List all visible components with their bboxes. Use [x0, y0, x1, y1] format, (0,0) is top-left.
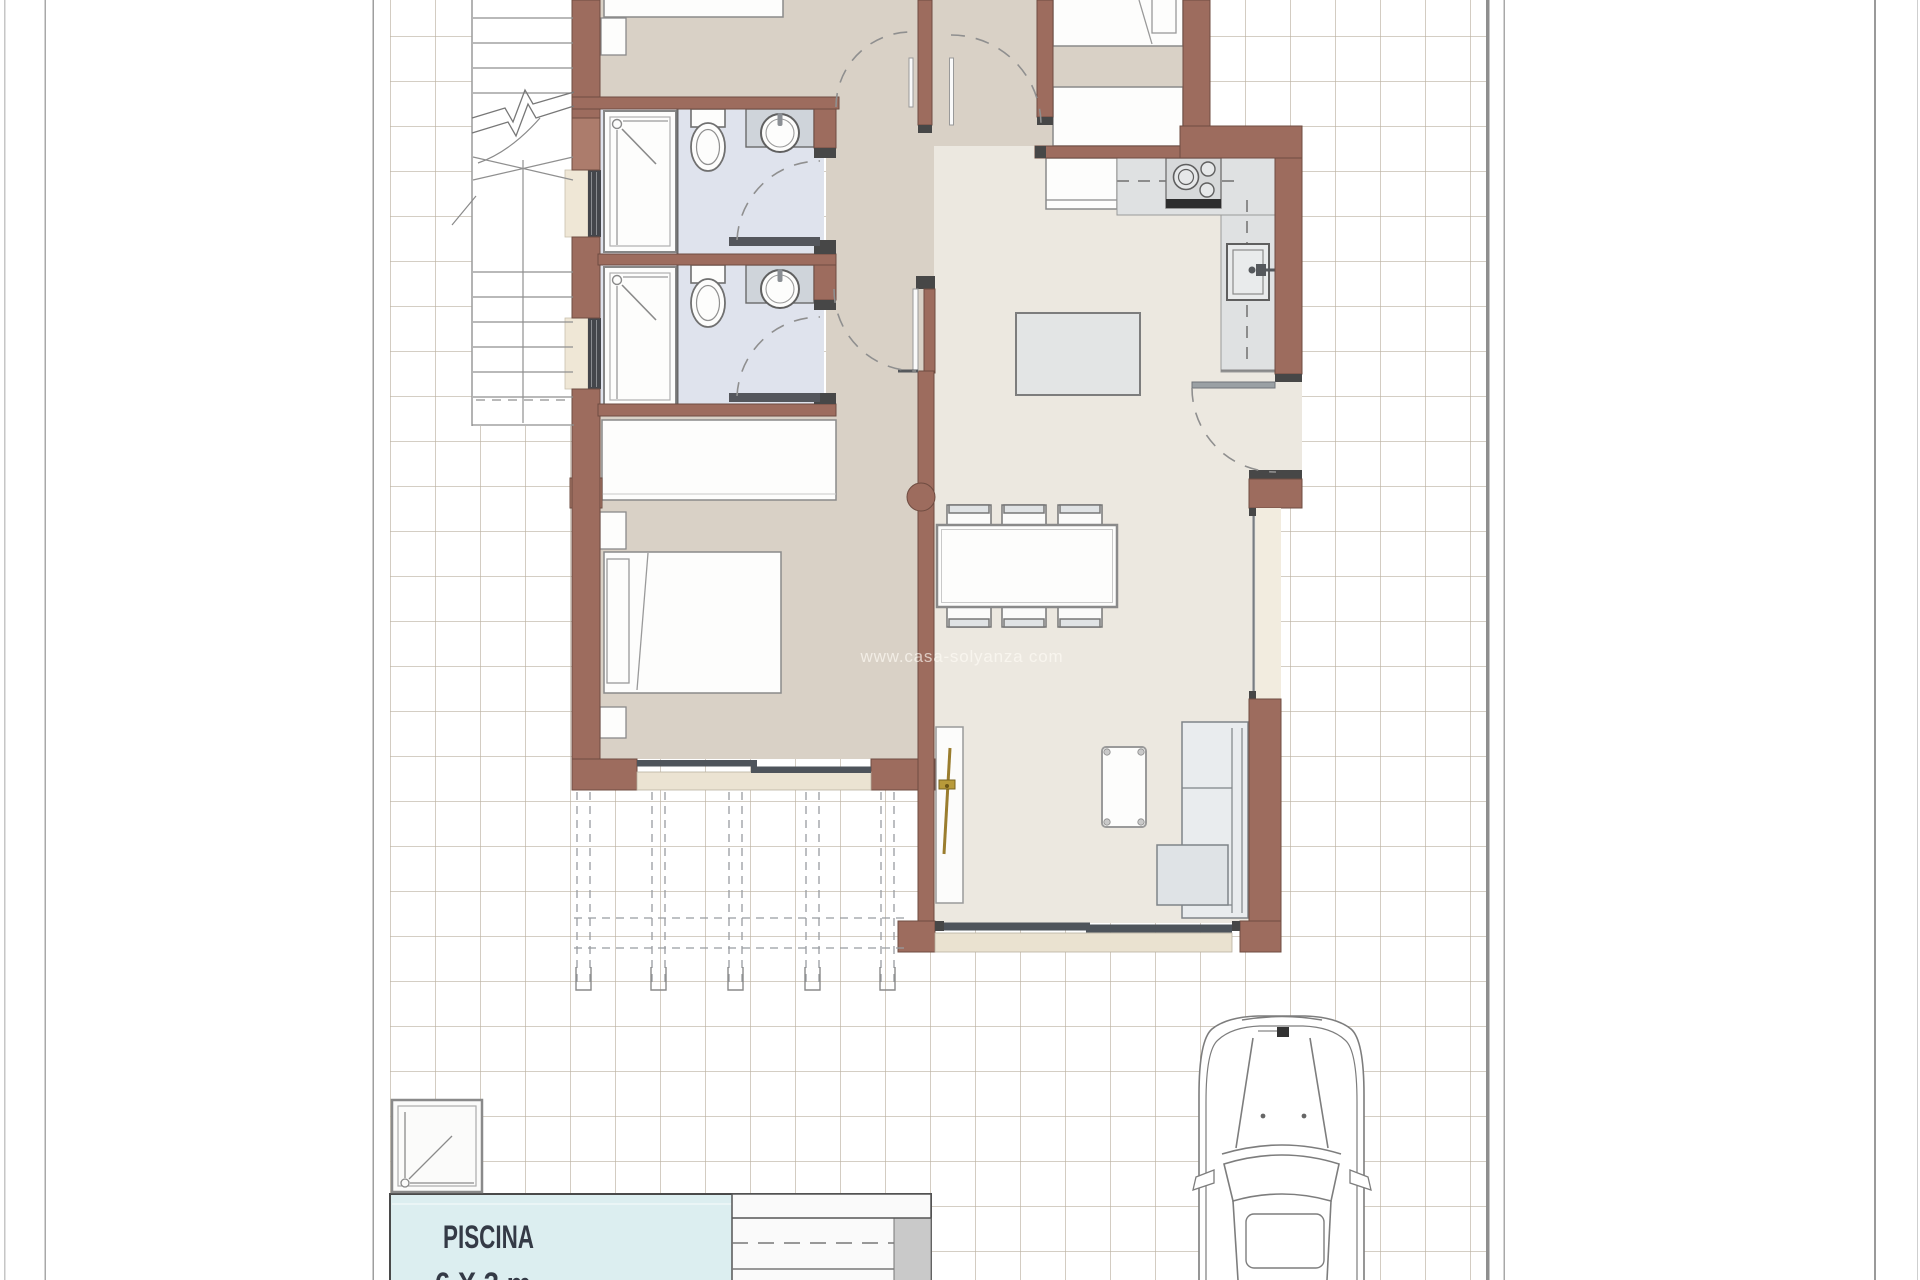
svg-text:PISCINA: PISCINA — [443, 1219, 534, 1255]
svg-text:www.casa-solyanza com: www.casa-solyanza com — [860, 647, 1064, 666]
svg-text:6 X 3 m: 6 X 3 m — [435, 1266, 531, 1280]
